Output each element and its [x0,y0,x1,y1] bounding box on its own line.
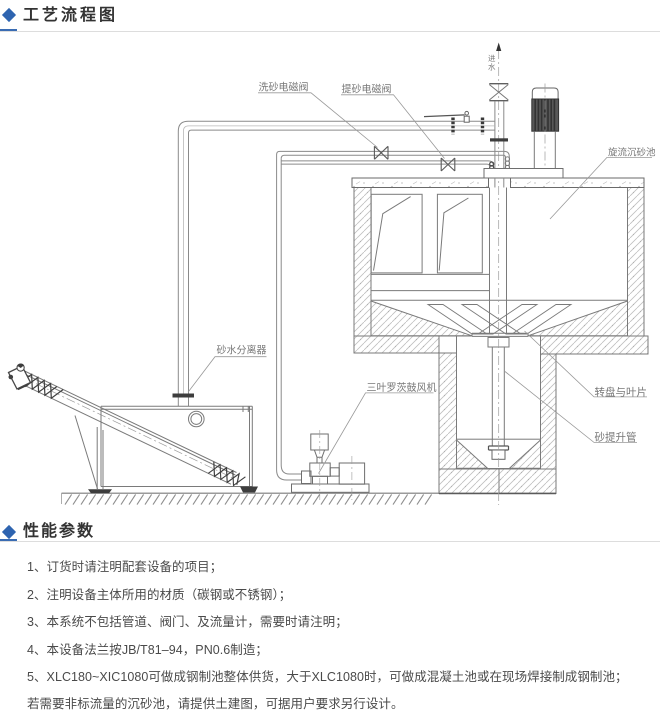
svg-text:水: 水 [488,62,496,72]
svg-text:洗砂电磁阀: 洗砂电磁阀 [259,81,309,94]
svg-text:三叶罗茨鼓风机: 三叶罗茨鼓风机 [367,381,437,394]
svg-text:砂水分离器: 砂水分离器 [217,344,267,357]
svg-text:旋流沉砂池: 旋流沉砂池 [608,147,656,159]
svg-text:提砂电磁阀: 提砂电磁阀 [342,83,392,96]
svg-text:砂提升管: 砂提升管 [595,431,637,444]
